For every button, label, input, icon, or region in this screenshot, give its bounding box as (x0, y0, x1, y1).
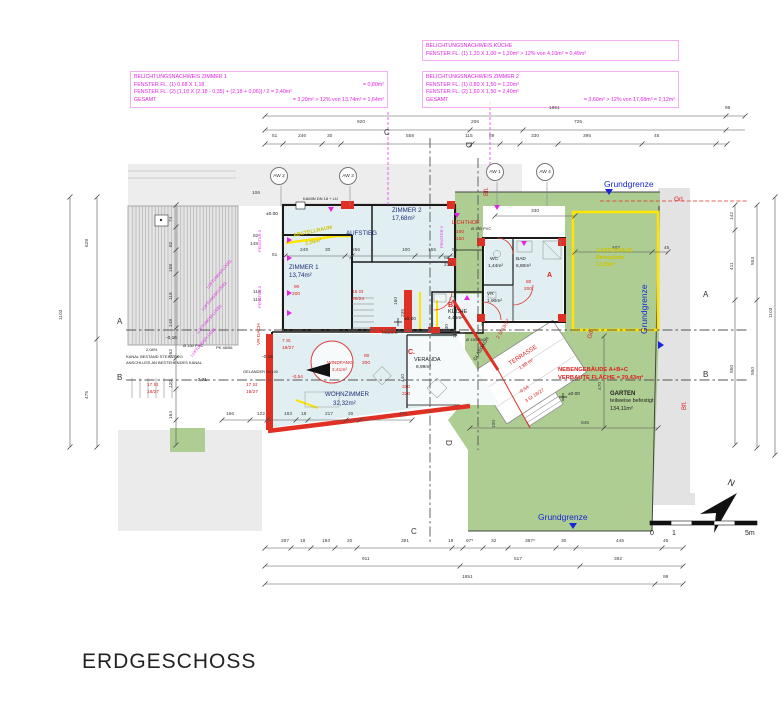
plan-label: 246 (298, 135, 306, 140)
plan-label: 387⁵ (525, 540, 535, 545)
plan-label: 5m (745, 530, 755, 537)
belichtung-line: BELICHTUNGSNACHWEIS ZIMMER 1 (134, 74, 384, 82)
plan-label: 13,74m² (289, 273, 312, 279)
plan-label: 17,68m² (392, 216, 415, 222)
plan-label: 118 (170, 292, 175, 300)
plan-label: 51 (272, 254, 277, 259)
plan-label: FENSTER 3 (258, 286, 262, 308)
plan-label: 12,28m² (596, 263, 615, 268)
plan-label: 550 (752, 367, 757, 375)
plan-label: ZIMMER 2 (392, 208, 422, 214)
plan-label: 30 (561, 540, 566, 545)
aw-marker: AW 3 (339, 167, 357, 185)
belichtung-block-kueche: BELICHTUNGSNACHWEIS KÜCHE FENSTER FL. (1… (422, 40, 679, 61)
plan-label: -0,54 (292, 376, 303, 381)
plan-label: 122 (257, 413, 265, 418)
plan-label: 18 (300, 540, 305, 545)
plan-label: GARTENHAUS (596, 249, 633, 254)
plan-label: -0,16 (262, 356, 273, 361)
plan-label: 256 (352, 249, 360, 254)
plan-label: 99 (725, 107, 730, 112)
plan-label: 550 (731, 365, 736, 373)
plan-label: 1 (672, 530, 676, 537)
plan-label: KANAL BESTAND STEINZEUG (126, 355, 183, 359)
plan-label: 470 (599, 382, 604, 390)
north-arrow-icon (700, 493, 737, 533)
plan-label: 89 (489, 135, 494, 140)
plan-label: 17 St (147, 384, 158, 389)
plan-label: -3,71 (196, 379, 207, 384)
belichtung-line: FENSTER FL. (1) 0,80 X 1,50 = 1,20m² (426, 82, 675, 90)
plan-label: 45 (654, 135, 659, 140)
plan-label: 200 (292, 293, 300, 298)
plan-label: 8,99m² (416, 366, 431, 371)
plan-label: 7 St (282, 340, 291, 345)
plan-label: NEBENGEBÄUDE A+B+C (558, 368, 628, 374)
plan-label: VERBAUTE FLÄCHE = 29,43m² (558, 376, 643, 382)
plan-label: 217 (325, 413, 333, 418)
plan-label: 18/27 (246, 391, 258, 396)
plan-label: 517 (514, 558, 522, 563)
plan-label: 249 (300, 249, 308, 254)
plan-label: 18 (448, 540, 453, 545)
belichtung-line: BELICHTUNGSNACHWEIS KÜCHE (426, 43, 675, 51)
plan-label: 45 (663, 540, 668, 545)
plan-label: ZIMMER 1 (289, 265, 319, 271)
plan-label: PK 48/56 (216, 346, 232, 350)
plan-label: 1103 (60, 310, 65, 320)
plan-label: Grundgrenze (604, 180, 654, 189)
aw-marker: AW 1 (486, 163, 504, 181)
plan-label: 911 (362, 558, 370, 563)
plan-label: 6,80m² (516, 265, 531, 270)
belichtung-line: GESAMT= 3,60m² > 12% von 17,68m² = 2,12m… (426, 97, 675, 105)
belichtung-line: GESAMT= 3,20m² > 12% von 13,74m² = 1,64m… (134, 97, 384, 105)
plan-label: 130 (446, 324, 451, 332)
plan-label: 310 (402, 386, 410, 391)
belichtung-line: BELICHTUNGSNACHWEIS ZIMMER 2 (426, 74, 675, 82)
plan-label: 30 (325, 249, 330, 254)
plan-label: 287 (281, 540, 289, 545)
belichtung-line: FENSTER FL. (2) [1,18 X (2,18 - 0,35) + … (134, 89, 384, 97)
plan-label: WINDFANG (327, 362, 353, 367)
plan-label: Bfl. (682, 401, 688, 410)
plan-label: 220 (402, 393, 410, 398)
plan-label: ±0.00 (568, 393, 580, 398)
plan-label: 20/24 (352, 298, 364, 303)
plan-label: Betonplatte (596, 256, 625, 261)
plan-label: 0 (650, 530, 654, 537)
plan-label: 200 (524, 288, 532, 293)
plan-label: 395 (583, 135, 591, 140)
plan-label: A (703, 291, 708, 299)
plan-label: 2,08% (146, 348, 157, 352)
plan-label: 45 (664, 247, 669, 252)
plan-label: 1851 (462, 576, 473, 581)
plan-label: 51 (452, 249, 457, 254)
plan-label: teilweise befestigt (610, 399, 653, 405)
plan-label: 99 (663, 576, 668, 581)
plan-label: 193 (322, 540, 330, 545)
floor-plan-page: BELICHTUNGSNACHWEIS ZIMMER 1 FENSTER FL.… (0, 0, 783, 713)
plan-label: 160 (456, 231, 464, 236)
plan-label: GARTEN (610, 391, 635, 397)
plan-label: 120 (170, 380, 175, 388)
belichtung-line: FENSTER FL. (1) 1,20 X 1,00 = 1,20m² > 1… (426, 51, 675, 59)
plan-label: AUFSTIEG (346, 231, 377, 237)
plan-label: 32,32m² (333, 401, 356, 407)
plan-label: 106 (252, 192, 260, 197)
plan-label: D (464, 142, 472, 148)
plan-label: 150 (456, 238, 464, 243)
plan-label: -0,16 (166, 337, 177, 342)
plan-label: 30 (327, 135, 332, 140)
plan-label: 80 (526, 281, 531, 286)
plan-label: 100 (402, 249, 410, 254)
belichtung-line: FENSTER FL. (2) 1,60 X 1,50 = 2,40m² (426, 89, 675, 97)
plan-label: 553 (752, 257, 757, 265)
plan-label: 20 (347, 540, 352, 545)
plan-label: A (547, 272, 552, 279)
belichtung-line: FENSTER FL. (1) 0,68 X 1,18= 0,80m² (134, 82, 384, 90)
plan-label: 142 (731, 212, 736, 220)
plan-label: 4,45m² (448, 317, 463, 322)
plan-label: 920 (357, 121, 365, 126)
plan-label: C (411, 528, 417, 536)
plan-label: 845 (581, 422, 589, 427)
plan-label: Bfl. (484, 187, 490, 196)
plan-label: 164 (170, 411, 175, 419)
plan-label: 19/27 (282, 347, 294, 352)
plan-label: 411 (731, 262, 736, 270)
plan-label: 558 (406, 135, 414, 140)
plan-label: A (117, 318, 122, 326)
plan-label: B. (448, 302, 455, 309)
plan-label: VR DACH (258, 323, 263, 345)
plan-label: 60 (444, 257, 449, 262)
plan-label: 440 (402, 374, 407, 382)
plan-label: ANSCHLUSS AN BESTEHENDES KANAL (126, 361, 202, 365)
scale-bar (650, 521, 757, 525)
plan-label: 392 (614, 558, 622, 563)
plan-label: 475 (399, 413, 407, 418)
plan-label: BAD (516, 258, 526, 263)
plan-label: GELÄNDER H=100 (243, 370, 278, 374)
plan-label: 134,11m² (610, 407, 633, 413)
plan-label: 1103 (770, 308, 775, 318)
plan-label: Ø 150 PVC (471, 227, 491, 231)
plan-label: 1,44m² (488, 265, 503, 270)
plan-label: 155 (428, 249, 436, 254)
plan-label: 51 (272, 135, 277, 140)
plan-label: D (444, 440, 452, 446)
plan-label: 166 (226, 413, 234, 418)
plan-label: 18/27 (147, 391, 159, 396)
plan-label: VR (487, 293, 494, 298)
plan-label: 74 (170, 217, 175, 222)
plan-label: Grl. (674, 197, 684, 204)
belichtung-block-zimmer2: BELICHTUNGSNACHWEIS ZIMMER 2 FENSTER FL.… (422, 71, 679, 108)
plan-label: 381 (401, 540, 409, 545)
aw-marker: AW 2 (270, 167, 288, 185)
plan-label: ±0.00 (404, 318, 416, 323)
plan-label: 110 (454, 330, 459, 338)
plan-label: WC (490, 258, 498, 263)
plan-label: 163 (284, 413, 292, 418)
plan-label: Grundgrenze (538, 513, 588, 522)
plan-label: 80 (364, 355, 369, 360)
plan-label: 15 St (352, 291, 363, 296)
plan-label: B (703, 371, 708, 379)
plan-label: 210 (444, 264, 452, 269)
plan-label: 158 (170, 264, 175, 272)
plan-label: 1851 (549, 107, 560, 112)
plan-label: 2,41m² (332, 369, 347, 374)
plan-label: 330 (531, 210, 539, 215)
page-title: ERDGESCHOSS (82, 650, 256, 674)
plan-label: Grundgrenze (640, 284, 649, 334)
plan-label: 82 (170, 242, 175, 247)
plan-label: 200 (362, 362, 370, 367)
plan-label: 475 (86, 391, 91, 399)
plan-label: 18 (301, 413, 306, 418)
plan-label: 206 (471, 121, 479, 126)
aw-marker: AW 4 (536, 163, 554, 181)
plan-label: 148 (170, 319, 175, 327)
plan-label: 445 (616, 540, 624, 545)
plan-label: 17 St (246, 384, 257, 389)
plan-label: VERANDA (414, 358, 441, 364)
plan-label: 115 (465, 135, 473, 140)
plan-label: 235 (402, 309, 407, 317)
belichtung-block-zimmer1: BELICHTUNGSNACHWEIS ZIMMER 1 FENSTER FL.… (130, 71, 388, 108)
plan-label: TRÄGER (381, 331, 398, 335)
plan-label: 97⁵ (466, 540, 473, 545)
plan-label: ±0.00 (266, 213, 278, 218)
plan-label: C (384, 129, 390, 137)
plan-label: 160 (395, 297, 400, 305)
plan-label: WOHNZIMMER (325, 392, 369, 398)
plan-label: 628 (86, 239, 91, 247)
plan-label: FENSTER 3 (258, 230, 262, 252)
plan-label: B (117, 374, 122, 382)
plan-label: FENSTER 2 (440, 226, 444, 248)
plan-label: 100 (493, 420, 498, 428)
plan-label: KÜCHE (448, 310, 467, 316)
plan-label: 32 (491, 540, 496, 545)
plan-label: 725 (574, 121, 582, 126)
plan-label: Ø 150 PVC (466, 338, 486, 342)
plan-label: 330 (531, 135, 539, 140)
plan-label: 90 (294, 286, 299, 291)
plan-label: KAMIN DN 18 + LÜ (303, 197, 338, 201)
plan-label: C. (408, 349, 415, 356)
plan-label: 20 (348, 413, 353, 418)
plan-label: 1,90m² (487, 300, 502, 305)
